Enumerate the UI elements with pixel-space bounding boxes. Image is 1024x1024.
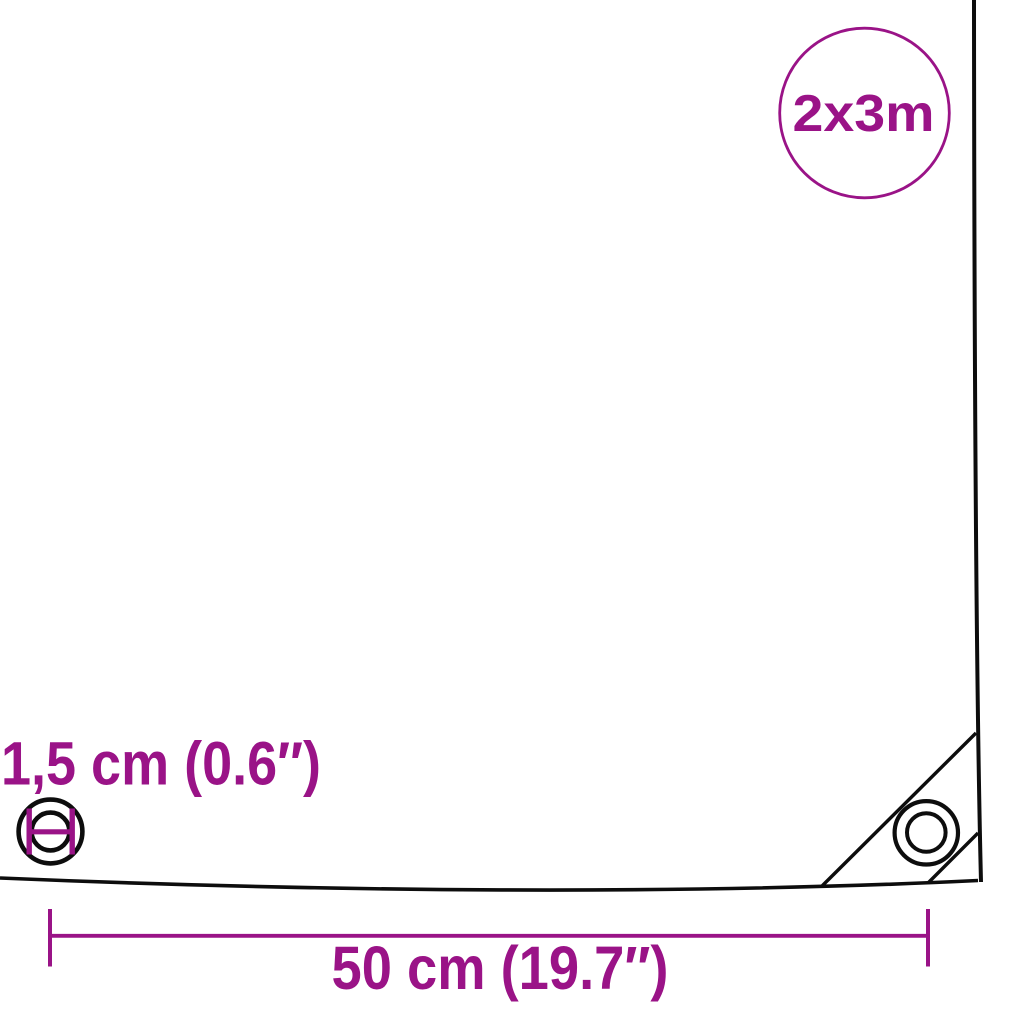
svg-text:1,5 cm (0.6″): 1,5 cm (0.6″) (1, 729, 321, 797)
svg-text:2x3m: 2x3m (793, 84, 935, 142)
svg-text:50 cm (19.7″): 50 cm (19.7″) (332, 934, 669, 1002)
